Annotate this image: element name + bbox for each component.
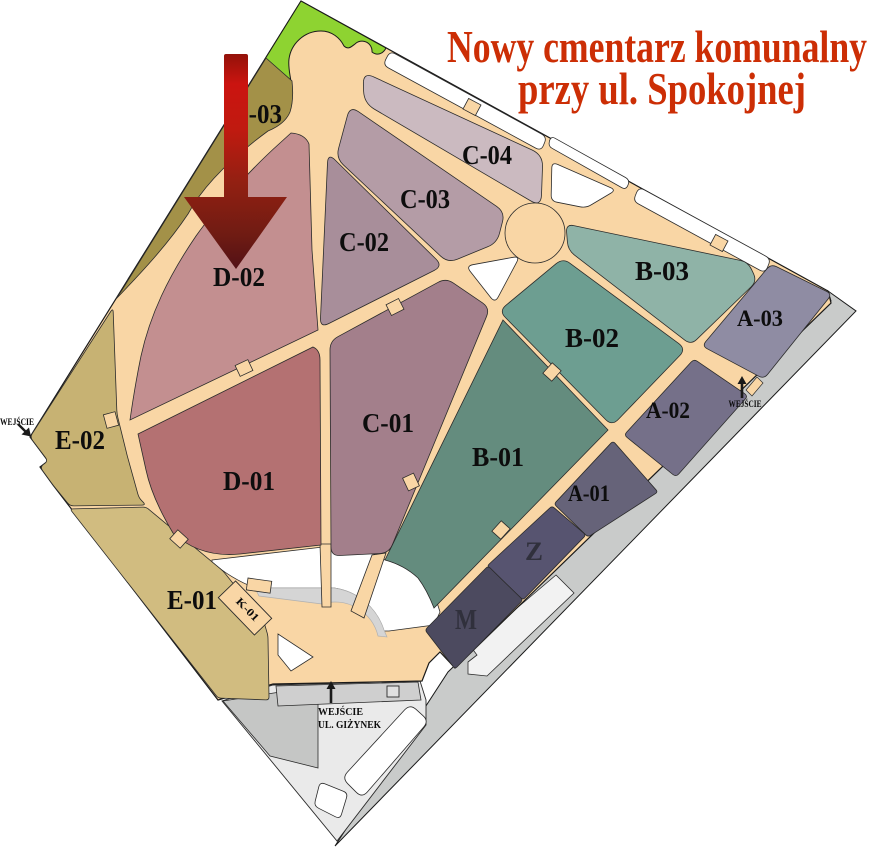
svg-text:C-03: C-03 bbox=[400, 184, 450, 214]
svg-text:A-03: A-03 bbox=[737, 306, 783, 331]
svg-text:WEJŚCIE: WEJŚCIE bbox=[0, 417, 34, 427]
svg-text:C-01: C-01 bbox=[362, 408, 414, 438]
svg-text:D-01: D-01 bbox=[223, 466, 275, 496]
svg-text:przy ul. Spokojnej: przy ul. Spokojnej bbox=[518, 63, 806, 114]
svg-text:WEJŚCIE: WEJŚCIE bbox=[318, 706, 363, 718]
svg-text:E-01: E-01 bbox=[167, 585, 217, 615]
svg-text:D-02: D-02 bbox=[213, 262, 265, 292]
svg-text:C-02: C-02 bbox=[339, 227, 389, 257]
svg-text:Z: Z bbox=[525, 537, 543, 566]
svg-text:A-02: A-02 bbox=[646, 398, 690, 423]
svg-text:B-01: B-01 bbox=[472, 442, 524, 472]
svg-text:UL. GIŻYNEK: UL. GIŻYNEK bbox=[318, 719, 381, 731]
svg-text:C-04: C-04 bbox=[462, 140, 512, 170]
svg-text:E-02: E-02 bbox=[55, 425, 105, 455]
svg-text:WEJŚCIE: WEJŚCIE bbox=[729, 399, 762, 409]
svg-text:B-03: B-03 bbox=[635, 256, 689, 286]
svg-text:B-02: B-02 bbox=[565, 323, 619, 353]
svg-text:M: M bbox=[455, 605, 477, 636]
svg-text:A-01: A-01 bbox=[568, 481, 610, 506]
